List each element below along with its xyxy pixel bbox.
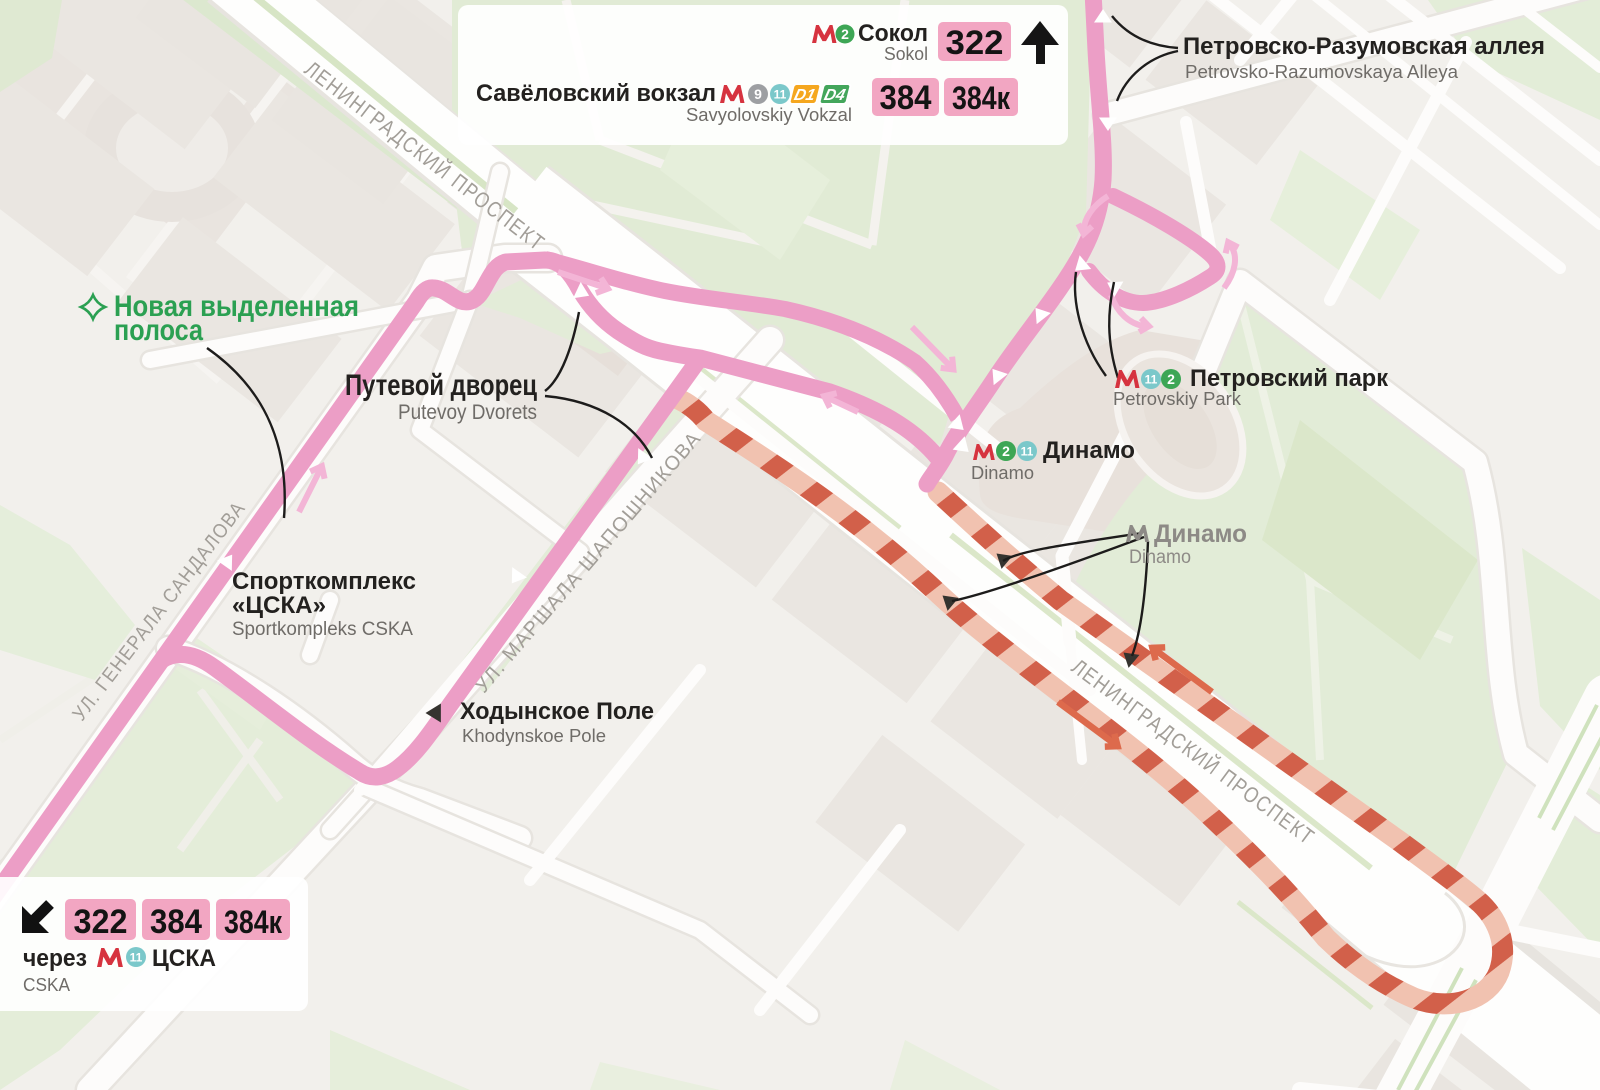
svg-text:Dinamo: Dinamo [1129, 547, 1191, 568]
svg-text:11: 11 [1145, 372, 1158, 386]
svg-text:11: 11 [1021, 444, 1034, 458]
svg-text:384: 384 [880, 79, 932, 117]
svg-text:Khodynskoe Pole: Khodynskoe Pole [462, 725, 606, 746]
svg-text:Путевой дворец: Путевой дворец [345, 369, 537, 402]
svg-text:Динамо: Динамо [1154, 520, 1247, 548]
svg-text:Ходынское Поле: Ходынское Поле [460, 698, 654, 725]
svg-text:Петровско-Разумовская аллея: Петровско-Разумовская аллея [1183, 33, 1545, 60]
svg-text:322: 322 [946, 24, 1004, 62]
svg-text:11: 11 [130, 950, 143, 964]
svg-text:«ЦСКА»: «ЦСКА» [232, 592, 326, 619]
svg-text:2: 2 [1002, 443, 1010, 459]
svg-text:Dinamo: Dinamo [971, 462, 1034, 483]
svg-text:Динамо: Динамо [1043, 437, 1135, 464]
svg-text:9: 9 [754, 86, 762, 102]
svg-text:2: 2 [841, 26, 849, 42]
svg-text:Савёловский вокзал: Савёловский вокзал [476, 80, 716, 107]
svg-text:384к: 384к [952, 80, 1011, 116]
svg-text:384: 384 [150, 903, 202, 941]
svg-text:полоса: полоса [114, 314, 203, 347]
svg-text:CSKA: CSKA [23, 974, 71, 995]
svg-text:Sokol: Sokol [884, 43, 928, 64]
svg-text:Putevoy Dvorets: Putevoy Dvorets [398, 401, 537, 424]
svg-text:2: 2 [1167, 371, 1175, 387]
svg-text:Спорткомплекс: Спорткомплекс [232, 568, 416, 595]
svg-text:322: 322 [74, 903, 128, 941]
svg-text:Petrovskiy Park: Petrovskiy Park [1113, 388, 1242, 409]
svg-text:Petrovsko-Razumovskaya Alleya: Petrovsko-Razumovskaya Alleya [1185, 61, 1459, 82]
svg-text:11: 11 [774, 87, 787, 101]
svg-text:ЦСКА: ЦСКА [152, 945, 216, 972]
svg-text:384к: 384к [224, 904, 283, 940]
svg-text:Savyolovskiy Vokzal: Savyolovskiy Vokzal [686, 104, 852, 125]
svg-text:Sportkompleks CSKA: Sportkompleks CSKA [232, 619, 413, 640]
svg-text:через: через [23, 945, 87, 972]
